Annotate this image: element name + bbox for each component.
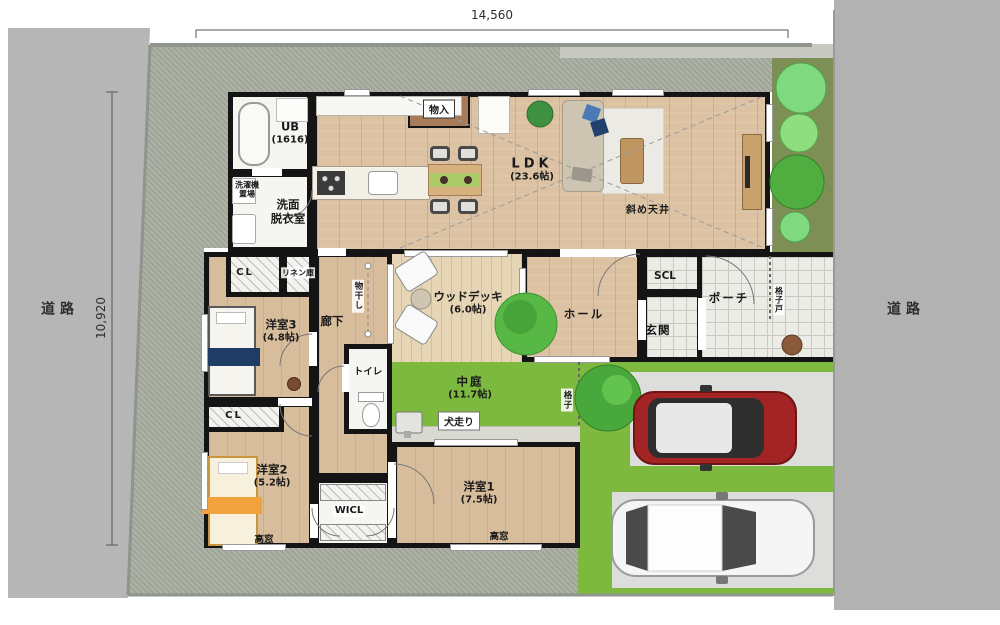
label-laundry: 洗濯機 置場 (235, 181, 259, 200)
road-right-label: 道路 (887, 302, 925, 319)
stool (287, 377, 301, 391)
pillow (216, 312, 246, 324)
label-linen: リネン庫 (281, 267, 315, 278)
opening-hall-ldk (560, 249, 636, 257)
bed-throw-orange (202, 497, 262, 514)
coffee-table (620, 138, 644, 184)
floor-plan-canvas: 14,560 10,920 道路 道路 UB (1616) 洗濯機 置場 洗面 … (0, 0, 1000, 625)
refrigerator (478, 96, 510, 134)
dining-chair (430, 146, 450, 161)
garden-strip-east (772, 58, 834, 252)
bathtub (238, 102, 270, 166)
washbasin (232, 214, 256, 244)
label-takamado-1: 高窓 (489, 531, 508, 542)
closet-cl-top (226, 252, 284, 297)
label-cl-top: CL (236, 267, 254, 279)
plate (440, 176, 448, 184)
label-toilet: トイレ (354, 366, 383, 377)
label-lattice-fence: 格子 (561, 389, 573, 412)
window-ldk-deck (404, 250, 508, 257)
dining-chair (458, 199, 478, 214)
window (387, 264, 394, 344)
label-clothes-drying: 物干し (352, 280, 364, 313)
kitchen-sink (368, 171, 398, 195)
window (612, 89, 664, 96)
dining-chair (430, 199, 450, 214)
label-bedroom3: 洋室3 (4.8帖) (263, 318, 300, 343)
label-ldk: LDK (23.6帖) (510, 156, 554, 183)
label-courtyard: 中庭 (11.7帖) (448, 375, 492, 400)
closet-cl-bottom (204, 402, 284, 432)
label-lattice-door: 格子戸 (774, 285, 785, 316)
label-wicl: WICL (333, 505, 365, 517)
plate (464, 176, 472, 184)
label-dog-run: 犬走り (438, 412, 480, 431)
label-ub: UB (1616) (272, 120, 309, 145)
label-cl-bottom: CL (225, 410, 243, 422)
door-opening (388, 504, 396, 538)
label-takamado-2: 高窓 (254, 534, 273, 545)
label-wood-deck: ウッドデッキ (6.0帖) (434, 290, 503, 315)
label-porch: ポーチ (709, 292, 750, 306)
table-runner (430, 173, 480, 187)
door-opening (388, 462, 396, 504)
toilet-bowl (362, 403, 380, 427)
door-opening (278, 398, 312, 406)
door-opening (318, 248, 346, 256)
parking-pad-1 (630, 372, 834, 466)
label-storage: 物入 (423, 100, 455, 119)
window (344, 89, 370, 96)
label-scl: SCL (654, 270, 676, 282)
label-entrance: 玄関 (646, 324, 671, 338)
wicl-shelf-top (320, 484, 386, 501)
stove (317, 171, 345, 195)
window (766, 104, 773, 142)
window (766, 208, 773, 246)
label-bedroom1: 洋室1 (7.5帖) (461, 480, 498, 505)
door-opening (342, 364, 349, 392)
door-opening (698, 298, 706, 350)
label-hall: ホール (564, 308, 605, 322)
wicl-shelf-bottom (320, 524, 386, 541)
dimension-width-label: 14,560 (471, 8, 513, 22)
dining-chair (458, 146, 478, 161)
toilet-tank (358, 392, 384, 402)
label-bedroom2: 洋室2 (5.2帖) (254, 463, 291, 488)
parking-pad-2 (612, 492, 834, 588)
cushion (571, 167, 593, 183)
tv (745, 156, 750, 188)
pillow (218, 462, 248, 474)
window (534, 356, 610, 363)
label-corridor: 廊下 (321, 315, 344, 329)
room-porch (702, 252, 772, 362)
label-washroom: 洗面 脱衣室 (271, 198, 306, 225)
door-opening (310, 504, 318, 538)
window (201, 452, 208, 510)
road-left-label: 道路 (41, 302, 79, 319)
door-opening (252, 168, 282, 176)
label-slanted-ceiling: 斜め天井 (626, 205, 670, 217)
concrete-band-top (560, 44, 834, 58)
bed-throw-navy (204, 348, 260, 366)
window (528, 89, 580, 96)
window (201, 314, 208, 372)
door-opening (309, 332, 317, 366)
window (519, 268, 526, 348)
window-takamado-1 (450, 544, 542, 551)
window (434, 439, 518, 446)
dimension-height-label: 10,920 (94, 297, 108, 339)
